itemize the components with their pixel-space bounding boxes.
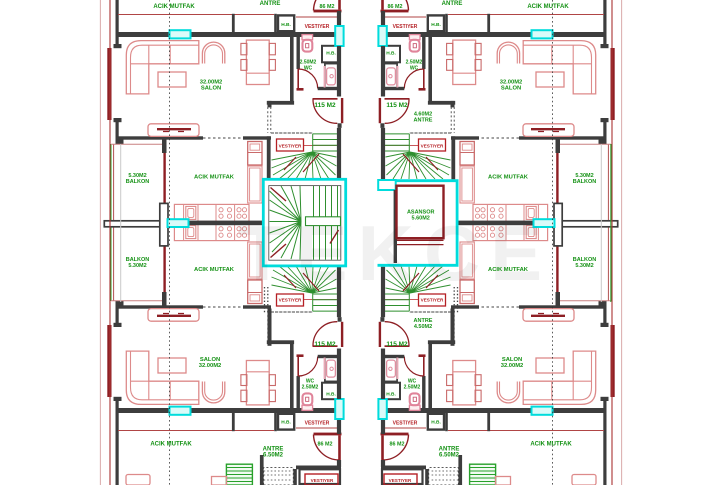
- svg-text:VESTIYER: VESTIYER: [305, 24, 330, 30]
- svg-text:ACIK MUTFAK: ACIK MUTFAK: [194, 175, 235, 181]
- svg-text:ANTRE: ANTRE: [260, 1, 281, 7]
- svg-text:ACIK MUTFAK: ACIK MUTFAK: [150, 442, 192, 448]
- svg-text:SALON: SALON: [501, 86, 521, 92]
- svg-text:2.50M2: 2.50M2: [404, 385, 421, 391]
- svg-text:2.50M2: 2.50M2: [302, 385, 319, 391]
- svg-text:6.50M2: 6.50M2: [439, 453, 460, 459]
- svg-text:VESTIYER: VESTIYER: [279, 144, 302, 149]
- svg-text:ANTRE: ANTRE: [442, 1, 463, 7]
- svg-text:ACIK MUTFAK: ACIK MUTFAK: [527, 4, 569, 10]
- svg-text:ACIK MUTFAK: ACIK MUTFAK: [488, 175, 529, 181]
- svg-text:ANTRE: ANTRE: [414, 118, 433, 124]
- svg-text:86 M2: 86 M2: [318, 442, 333, 448]
- svg-text:ACIK MUTFAK: ACIK MUTFAK: [153, 4, 195, 10]
- svg-text:115 M2: 115 M2: [386, 341, 408, 348]
- svg-text:BALKON: BALKON: [573, 179, 597, 185]
- svg-text:86 M2: 86 M2: [390, 442, 405, 448]
- svg-text:6.50M2: 6.50M2: [263, 453, 284, 459]
- svg-text:5.30M2: 5.30M2: [575, 263, 593, 269]
- svg-text:H.B.: H.B.: [326, 392, 336, 398]
- svg-text:VESTIYER: VESTIYER: [311, 478, 334, 483]
- svg-text:VESTIYER: VESTIYER: [421, 144, 444, 149]
- svg-text:WC: WC: [304, 66, 313, 72]
- svg-text:WC: WC: [410, 66, 419, 72]
- svg-text:86 M2: 86 M2: [320, 4, 335, 10]
- svg-text:VESTIYER: VESTIYER: [279, 298, 302, 303]
- svg-text:H.B.: H.B.: [326, 51, 336, 57]
- svg-text:VESTIYER: VESTIYER: [393, 24, 418, 30]
- svg-text:TEKCE: TEKCE: [238, 209, 552, 297]
- svg-text:5.30M2: 5.30M2: [128, 263, 146, 269]
- svg-text:VESTIYER: VESTIYER: [305, 421, 330, 427]
- svg-text:32.00M2: 32.00M2: [501, 363, 524, 369]
- svg-text:115 M2: 115 M2: [314, 341, 336, 348]
- svg-text:ACIK MUTFAK: ACIK MUTFAK: [488, 267, 529, 273]
- svg-text:115 M2: 115 M2: [386, 102, 408, 109]
- svg-text:115 M2: 115 M2: [314, 102, 336, 109]
- svg-text:86 M2: 86 M2: [388, 4, 403, 10]
- svg-text:VESTIYER: VESTIYER: [393, 421, 418, 427]
- svg-text:H.B.: H.B.: [431, 22, 441, 28]
- svg-text:SALON: SALON: [201, 86, 221, 92]
- svg-text:H.B.: H.B.: [386, 392, 396, 398]
- svg-text:H.B.: H.B.: [281, 420, 291, 426]
- svg-text:VESTIYER: VESTIYER: [421, 298, 444, 303]
- svg-text:4.50M2: 4.50M2: [414, 324, 432, 330]
- svg-text:ACIK MUTFAK: ACIK MUTFAK: [530, 442, 572, 448]
- svg-text:32.00M2: 32.00M2: [199, 363, 222, 369]
- svg-text:BALKON: BALKON: [126, 179, 150, 185]
- svg-text:H.B.: H.B.: [281, 22, 291, 28]
- svg-text:5.60M2: 5.60M2: [412, 216, 430, 222]
- svg-text:VESTIYER: VESTIYER: [389, 478, 412, 483]
- svg-text:H.B.: H.B.: [431, 420, 441, 426]
- svg-text:ACIK MUTFAK: ACIK MUTFAK: [194, 267, 235, 273]
- svg-text:H.B.: H.B.: [386, 51, 396, 57]
